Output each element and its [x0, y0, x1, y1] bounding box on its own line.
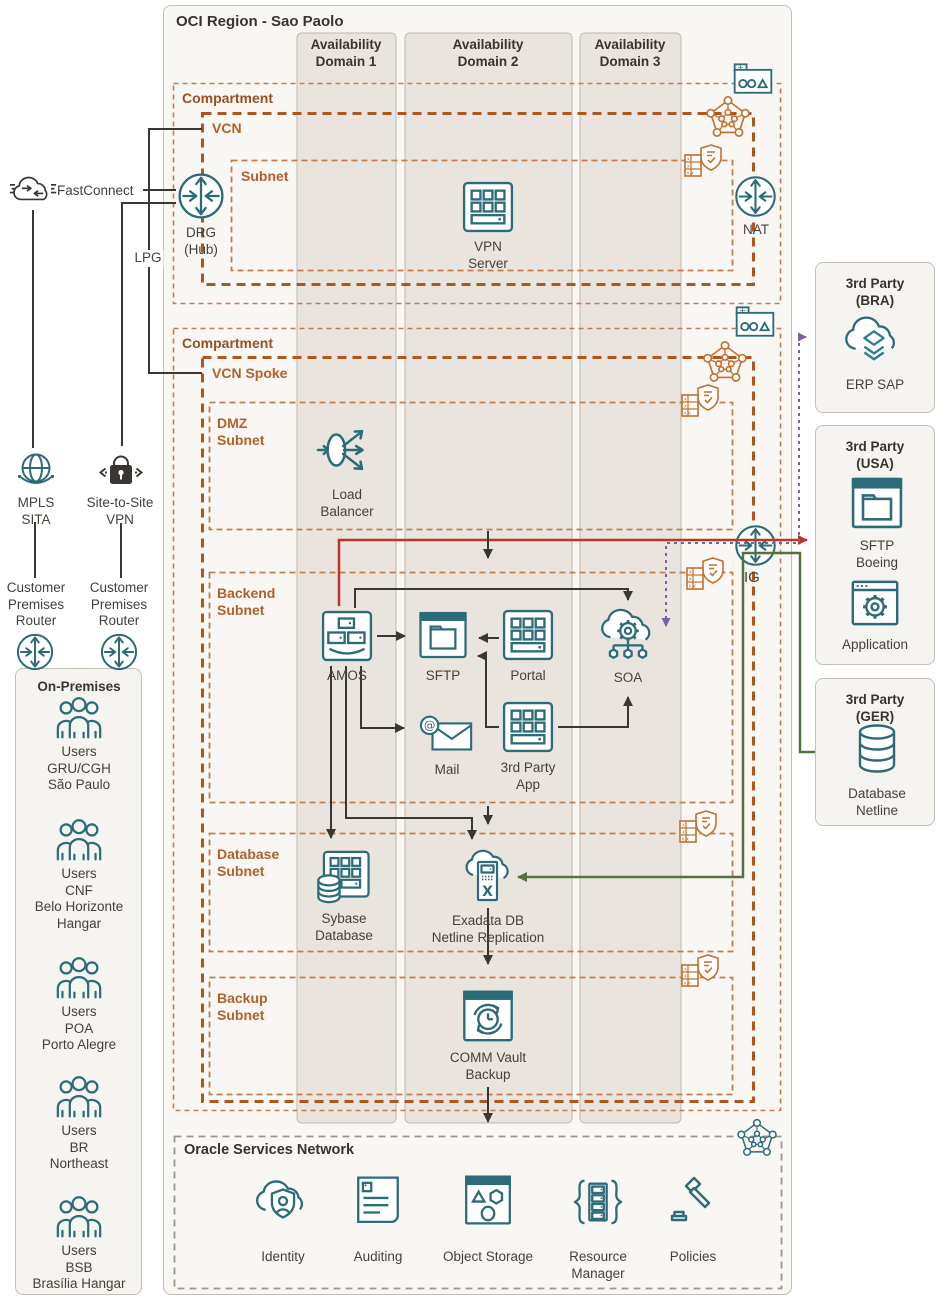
commvault-backup-icon	[460, 988, 516, 1044]
vcn-mesh-icon	[703, 340, 747, 382]
object-storage-icon	[460, 1173, 516, 1227]
route-table-security-list-icon: x x x,x	[678, 808, 722, 848]
users-group-icon	[50, 695, 108, 741]
sftp-boeing-icon	[849, 475, 905, 531]
customer-premises-router-icon	[15, 632, 55, 672]
application-gear-icon	[849, 578, 901, 628]
sftp-folder-icon	[416, 608, 470, 662]
load-balancer-icon	[316, 421, 378, 479]
oci-architecture-diagram: @ X +	[0, 0, 940, 1299]
svg-text:x: x	[684, 967, 687, 973]
third-party-app-label: 3rd PartyApp	[501, 760, 556, 793]
customer-premises-router-label: CustomerPremisesRouter	[7, 580, 66, 630]
users-br-label: UsersBRNortheast	[50, 1123, 109, 1173]
database-netline-cylinder-icon	[853, 722, 901, 776]
svg-text:X: X	[482, 884, 493, 900]
route-table-security-list-icon: x x x,x	[680, 952, 724, 992]
sftp-boeing-label: SFTPBoeing	[856, 538, 898, 571]
svg-text:x: x	[684, 397, 687, 403]
vpn-server-label: VPNServer	[468, 239, 508, 272]
route-table-security-list-icon: x x x,x	[683, 142, 727, 182]
third-party-usa-title: 3rd Party(USA)	[846, 439, 905, 472]
portal-label: Portal	[510, 668, 545, 685]
customer-premises-router-label: CustomerPremisesRouter	[90, 580, 149, 630]
route-table-security-list-icon: x x x,x	[680, 382, 724, 422]
svg-text:+: +	[739, 305, 746, 315]
identity-icon	[252, 1176, 314, 1228]
svg-text:x,x: x,x	[684, 981, 692, 987]
users-gru-label: UsersGRU/CGHSão Paulo	[47, 744, 111, 794]
policies-gavel-icon	[665, 1176, 721, 1226]
svg-text:x: x	[689, 577, 692, 583]
ig-label: IG	[744, 569, 760, 586]
erp-sap-label: ERP SAP	[846, 377, 904, 394]
users-group-icon	[50, 1074, 108, 1120]
nat-gateway-icon	[733, 174, 778, 219]
sybase-database-icon	[315, 848, 373, 906]
users-cnf-label: UsersCNFBelo HorizonteHangar	[35, 866, 124, 932]
soa-label: SOA	[614, 670, 643, 687]
exadata-db-icon: X	[461, 849, 515, 905]
compartment-folder-icon: +	[731, 60, 775, 98]
mail-label: Mail	[435, 762, 460, 779]
database-netline-label: DatabaseNetline	[848, 786, 906, 819]
third-party-ger-title: 3rd Party(GER)	[846, 692, 905, 725]
svg-text:+: +	[737, 62, 744, 72]
exadata-label: Exadata DBNetline Replication	[432, 913, 545, 946]
backup-subnet-label: BackupSubnet	[217, 990, 268, 1024]
region-title: OCI Region - Sao Paolo	[176, 13, 344, 30]
backend-subnet-label: BackendSubnet	[217, 585, 275, 619]
route-table-security-list-icon: x x x,x	[685, 555, 729, 595]
nat-label: NAT	[743, 222, 769, 239]
subnet-label: Subnet	[241, 168, 288, 185]
amos-server-icon	[319, 608, 375, 664]
compartment-folder-icon: +	[733, 303, 777, 341]
vcn-label: VCN	[212, 120, 242, 137]
soa-cloud-icon	[597, 605, 659, 663]
svg-text:x: x	[684, 974, 687, 980]
portal-icon	[500, 607, 556, 663]
svg-text:x: x	[687, 164, 690, 170]
compartment-1-label: Compartment	[182, 90, 273, 107]
on-premises-title: On-Premises	[37, 679, 120, 696]
erp-sap-cloud-icon	[841, 312, 907, 366]
commvault-label: COMM VaultBackup	[450, 1050, 526, 1083]
load-balancer-label: LoadBalancer	[320, 487, 373, 520]
mpls-globe-icon	[14, 449, 58, 493]
auditing-label: Auditing	[354, 1249, 403, 1266]
svg-text:x: x	[682, 823, 685, 829]
svg-text:x: x	[682, 830, 685, 836]
resource-manager-label: ResourceManager	[569, 1249, 627, 1282]
mpls-sita-label: MPLSSITA	[18, 495, 55, 528]
svg-text:x,x: x,x	[682, 837, 690, 843]
third-party-bra-title: 3rd Party(BRA)	[846, 276, 905, 309]
identity-label: Identity	[261, 1249, 305, 1266]
svg-text:x: x	[687, 157, 690, 163]
users-poa-label: UsersPOAPorto Alegre	[42, 1004, 116, 1054]
users-group-icon	[50, 817, 108, 863]
svg-text:x,x: x,x	[689, 584, 697, 590]
users-bsb-label: UsersBSBBrasília Hangar	[32, 1243, 125, 1293]
sybase-label: SybaseDatabase	[315, 911, 373, 944]
users-group-icon	[50, 955, 108, 1001]
application-label: Application	[842, 637, 908, 654]
vpn-server-icon	[460, 179, 516, 235]
auditing-icon	[353, 1174, 403, 1226]
resource-manager-icon	[568, 1176, 628, 1228]
svg-text:x: x	[689, 570, 692, 576]
drg-gateway-icon	[176, 171, 226, 221]
dmz-subnet-label: DMZSubnet	[217, 415, 264, 449]
osn-title: Oracle Services Network	[184, 1142, 354, 1159]
svg-text:x,x: x,x	[687, 171, 695, 177]
database-subnet-label: DatabaseSubnet	[217, 846, 279, 880]
third-party-app-icon	[500, 699, 556, 755]
amos-label: AMOS	[327, 668, 367, 685]
lpg-label: LPG	[132, 250, 163, 267]
ad2-header: AvailabilityDomain 2	[453, 37, 524, 70]
vcn-mesh-icon	[706, 95, 750, 137]
services-network-mesh-icon	[737, 1118, 777, 1156]
svg-text:@: @	[424, 718, 436, 732]
svg-text:x,x: x,x	[684, 411, 692, 417]
compartment-2-label: Compartment	[182, 335, 273, 352]
ad1-header: AvailabilityDomain 1	[311, 37, 382, 70]
users-group-icon	[50, 1194, 108, 1240]
customer-premises-router-icon	[99, 632, 139, 672]
site-to-site-vpn-lock-icon	[98, 451, 144, 493]
svg-text:x: x	[684, 404, 687, 410]
fastconnect-icon	[9, 171, 57, 209]
drg-label: DRG(Hub)	[184, 225, 218, 258]
vcn-spoke-label: VCN Spoke	[212, 365, 287, 382]
object-storage-label: Object Storage	[443, 1249, 533, 1266]
fastconnect-label: FastConnect	[57, 182, 134, 199]
ad3-header: AvailabilityDomain 3	[595, 37, 666, 70]
mail-icon: @	[419, 714, 475, 756]
policies-label: Policies	[670, 1249, 717, 1266]
sftp-label: SFTP	[426, 668, 461, 685]
site-to-site-vpn-label: Site-to-SiteVPN	[87, 495, 154, 528]
